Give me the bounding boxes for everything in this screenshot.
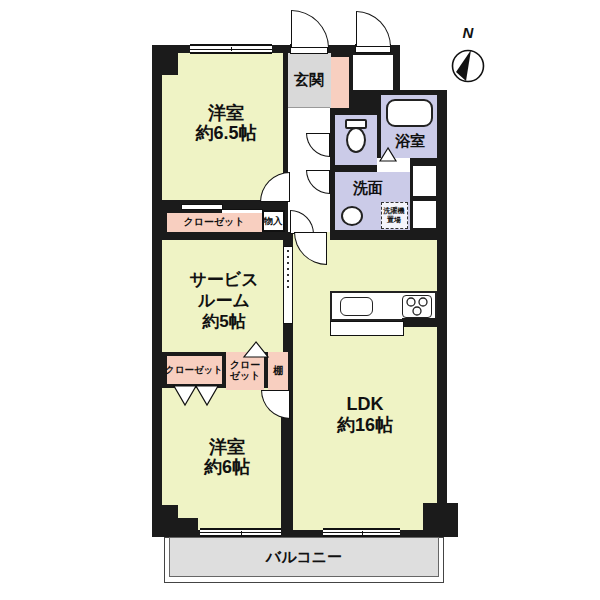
- kitchen-counter-front: [330, 321, 404, 336]
- compass-north-label: N: [463, 24, 474, 41]
- label-shelf: 棚: [273, 365, 283, 377]
- label-storage: 物入: [264, 216, 283, 227]
- room-name: LDK: [347, 394, 384, 414]
- laundry-line2: 置場: [387, 216, 401, 223]
- floor-plan: N 洋室 約6.5帖 玄関 浴室 洗面 洗濯機 置場 サービス ルーム 約5帖 …: [0, 0, 600, 600]
- service-line3: 約5帖: [202, 312, 245, 331]
- closet-line2: ゼット: [230, 370, 261, 381]
- room-label-western-6: 洋室 約6帖: [204, 437, 250, 477]
- wall-corner-bottom-left-b: [152, 518, 198, 537]
- label-closet-top: クローゼット: [183, 216, 244, 228]
- wall-corner-bottom-right: [423, 503, 458, 537]
- label-closet-mid-center: クロー ゼット: [230, 359, 261, 381]
- label-closet-mid-left: クローゼット: [165, 365, 223, 376]
- room-name: 洋室: [209, 437, 245, 457]
- room-label-entrance: 玄関: [294, 71, 324, 88]
- room-name: 洋室: [208, 103, 244, 123]
- room-area: 約6帖: [204, 457, 250, 477]
- service-line2: ルーム: [198, 291, 250, 310]
- room-label-washroom: 洗面: [353, 179, 383, 196]
- room-label-service: サービス ルーム 約5帖: [189, 269, 258, 332]
- room-label-bathroom: 浴室: [395, 132, 425, 149]
- compass-north-icon: [448, 46, 488, 86]
- closet-line1: クロー: [230, 359, 260, 370]
- room-label-laundry: 洗濯機 置場: [384, 206, 405, 224]
- room-label-western-6-5: 洋室 約6.5帖: [195, 103, 256, 143]
- laundry-line1: 洗濯機: [384, 207, 405, 214]
- label-balcony: バルコニー: [266, 548, 342, 565]
- kitchen-wall-stub: [402, 318, 437, 327]
- stove-burners-icon: [0, 0, 600, 600]
- room-area: 約6.5帖: [195, 123, 256, 143]
- room-label-ldk: LDK 約16帖: [337, 394, 393, 436]
- room-area: 約16帖: [337, 415, 393, 435]
- service-line1: サービス: [189, 270, 258, 289]
